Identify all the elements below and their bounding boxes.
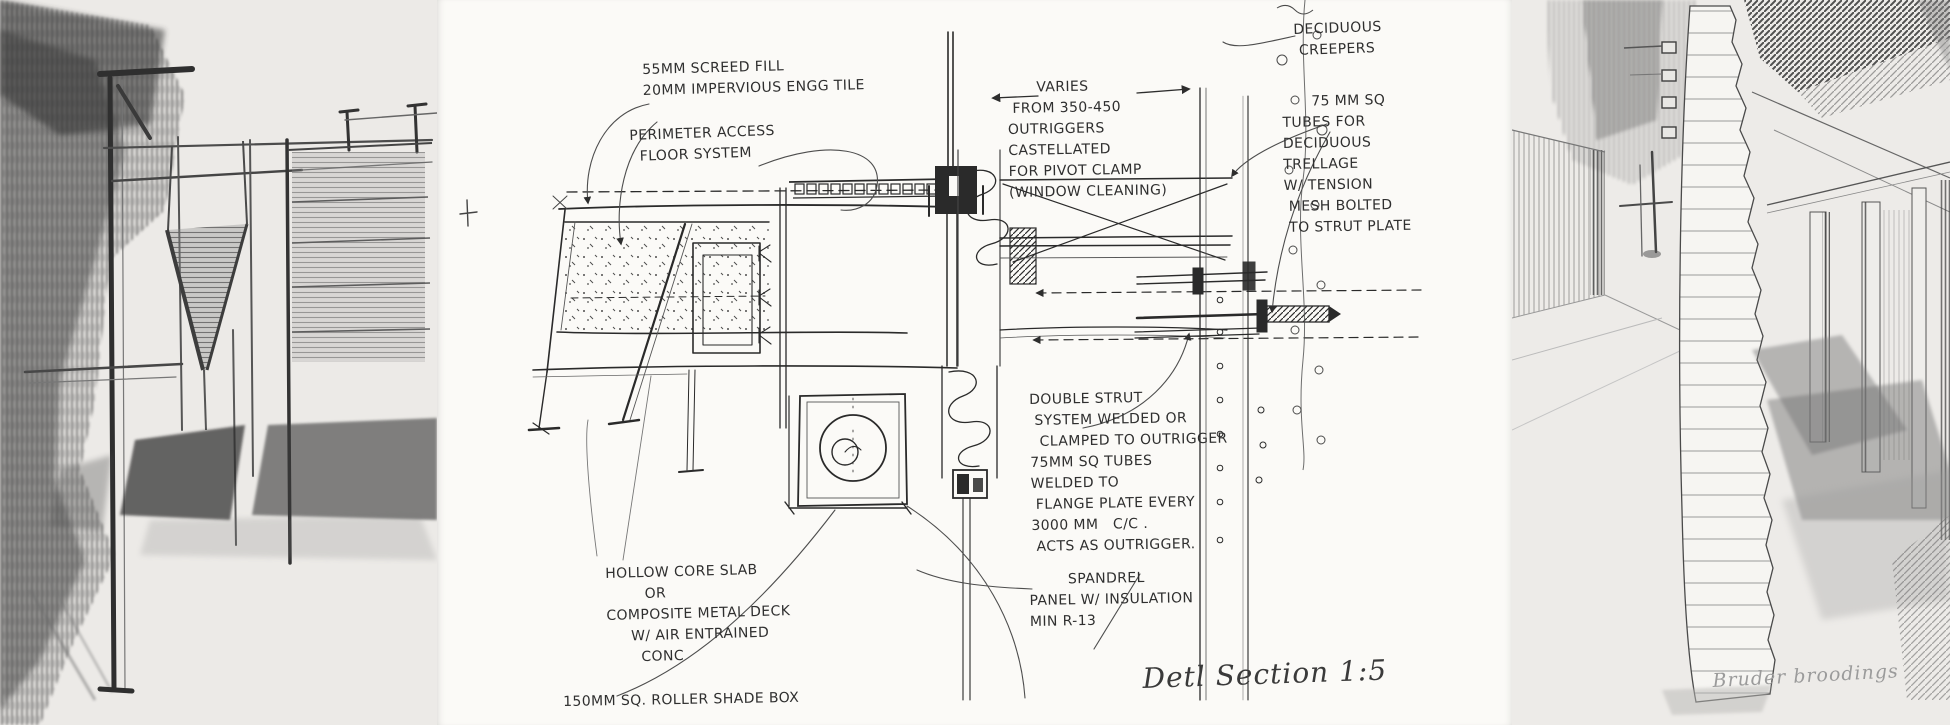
annotation-trellage: 75 MM SQ TUBES FOR DECIDUOUS TRELLAGE W/… (1282, 90, 1412, 239)
right-sketch-drawing (1512, 0, 1950, 725)
annotation-roller: 150MM SQ. ROLLER SHADE BOX (563, 688, 799, 713)
ceiling-hatching (1744, 0, 1950, 212)
slab-and-floor (460, 188, 957, 472)
annotation-slab: HOLLOW CORE SLAB OR COMPOSITE METAL DECK… (605, 559, 792, 669)
castellated-beam (789, 179, 949, 198)
charcoal-edge-shading (0, 0, 185, 725)
annotation-perimeter: PERIMETER ACCESS FLOOR SYSTEM (629, 121, 776, 168)
roller-shade-box (785, 394, 911, 514)
annotation-screed: 55MM SCREED FILL 20MM IMPERVIOUS ENGG TI… (642, 54, 865, 102)
annotation-varies: VARIES FROM 350-450 OUTRIGGERS CASTELLAT… (1007, 75, 1167, 204)
left-sketch-drawing (0, 0, 437, 725)
annotation-creepers: DECIDUOUS CREEPERS (1293, 17, 1383, 62)
right-sketch-panel: Bruder broodings (1512, 0, 1950, 725)
sketch-triptych: 55MM SCREED FILL 20MM IMPERVIOUS ENGG TI… (0, 0, 1950, 725)
left-wall (1512, 130, 1682, 430)
left-sketch-panel (0, 0, 437, 725)
center-detail-panel: 55MM SCREED FILL 20MM IMPERVIOUS ENGG TI… (437, 0, 1512, 725)
shaded-wall-block (288, 143, 432, 362)
annotation-strut: DOUBLE STRUT SYSTEM WELDED OR CLAMPED TO… (1029, 387, 1230, 558)
annotation-spandrel: SPANDREL PANEL W/ INSULATION MIN R-13 (1029, 567, 1194, 633)
